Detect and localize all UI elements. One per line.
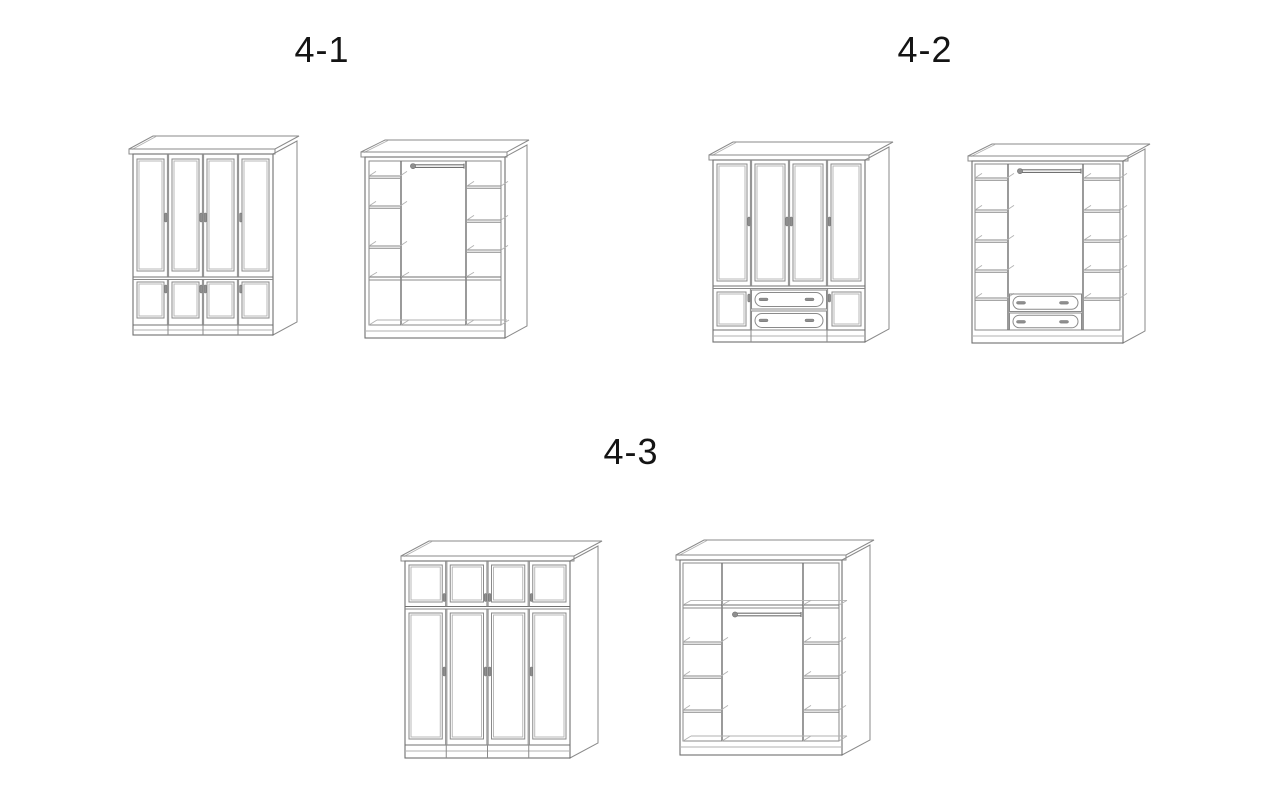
- figure-label-4-1: 4-1: [252, 30, 392, 70]
- figure-label-4-2: 4-2: [855, 30, 995, 70]
- carcass-frame: [972, 161, 1123, 343]
- crown-molding: [676, 540, 874, 560]
- wardrobe-4-1-interior-drawing: [356, 128, 546, 344]
- shelf-column-left: [683, 637, 728, 712]
- small-doors: [137, 280, 269, 326]
- side-panel: [570, 546, 598, 758]
- crown-molding: [709, 142, 893, 160]
- side-panel: [1123, 149, 1145, 343]
- wardrobe-4-2-closed-drawing: [702, 130, 902, 350]
- figure-label-4-3: 4-3: [561, 432, 701, 472]
- top-full-width-shelf: [683, 600, 847, 608]
- side-panel: [842, 545, 870, 755]
- vertical-dividers: [722, 563, 803, 741]
- shelf-column-right: [804, 637, 846, 712]
- crown-molding: [129, 136, 299, 154]
- cabinet-front: [133, 154, 273, 335]
- wardrobe-4-3-closed-drawing: [396, 532, 608, 764]
- cabinet-floor: [683, 736, 847, 741]
- shelf-column-right: [467, 181, 508, 252]
- vertical-dividers: [1008, 164, 1083, 330]
- wardrobe-catalog-sheet: 4-1 4-2 4-3: [0, 0, 1280, 800]
- side-panel: [505, 145, 527, 338]
- crown-molding: [361, 140, 529, 157]
- hanging-rod: [1017, 169, 1081, 174]
- interior-drawer-stack: [1010, 294, 1082, 330]
- top-small-doors: [409, 561, 566, 607]
- wardrobe-4-3-interior-drawing: [666, 530, 876, 760]
- carcass-frame: [680, 560, 842, 755]
- tall-doors: [137, 154, 269, 277]
- carcass-frame: [365, 157, 505, 338]
- tall-doors: [717, 160, 861, 286]
- cabinet-front: [405, 561, 570, 758]
- side-panel: [865, 147, 889, 342]
- crown-molding: [401, 541, 602, 561]
- bottom-compartments: [369, 320, 509, 325]
- side-panel: [273, 141, 297, 335]
- wardrobe-4-2-interior-drawing: [960, 132, 1160, 350]
- crown-molding: [968, 144, 1150, 161]
- cabinet-front: [713, 160, 865, 342]
- full-width-shelf: [369, 272, 501, 280]
- vertical-dividers: [401, 161, 466, 325]
- wardrobe-4-1-closed-drawing: [116, 128, 312, 344]
- hanging-rod: [410, 164, 464, 169]
- hanging-rod: [732, 612, 801, 617]
- drawer-stack: [752, 290, 827, 330]
- shelf-column-right: [1084, 173, 1127, 300]
- tall-doors: [409, 609, 566, 745]
